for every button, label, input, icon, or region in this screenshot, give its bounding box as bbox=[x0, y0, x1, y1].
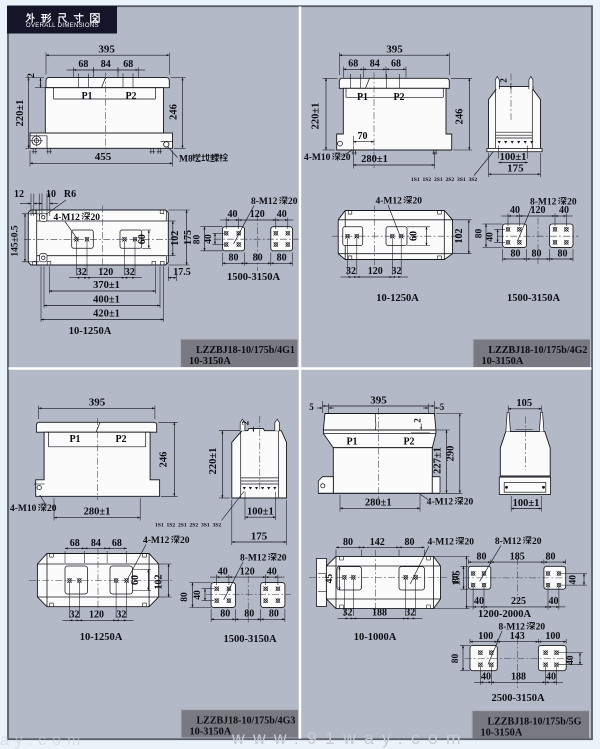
svg-text:40: 40 bbox=[510, 205, 520, 216]
svg-text:20: 20 bbox=[341, 153, 351, 163]
svg-text:80: 80 bbox=[477, 551, 487, 562]
svg-text:1500-3150A: 1500-3150A bbox=[223, 634, 276, 645]
svg-text:www.91way.com: www.91way.com bbox=[231, 728, 469, 748]
svg-text:80: 80 bbox=[511, 248, 521, 259]
svg-text:120: 120 bbox=[368, 266, 383, 277]
svg-text:P2: P2 bbox=[403, 437, 414, 448]
svg-text:10: 10 bbox=[46, 189, 56, 200]
svg-text:12: 12 bbox=[14, 189, 24, 200]
svg-text:32: 32 bbox=[77, 267, 87, 278]
svg-text:8-M12: 8-M12 bbox=[240, 554, 267, 564]
svg-text:175: 175 bbox=[507, 163, 524, 175]
svg-text:185: 185 bbox=[510, 551, 525, 562]
svg-text:40: 40 bbox=[566, 655, 576, 665]
svg-text:P1: P1 bbox=[357, 92, 368, 103]
svg-text:4-M12: 4-M12 bbox=[143, 536, 170, 546]
svg-text:8-M12: 8-M12 bbox=[495, 537, 522, 547]
svg-text:100±1: 100±1 bbox=[500, 152, 527, 163]
svg-text:120: 120 bbox=[98, 267, 113, 278]
svg-text:80: 80 bbox=[405, 537, 415, 548]
svg-text:2: 2 bbox=[499, 78, 509, 83]
svg-text:455: 455 bbox=[95, 151, 112, 163]
svg-text:4-M12: 4-M12 bbox=[54, 213, 81, 223]
svg-text:100: 100 bbox=[478, 631, 493, 642]
svg-text:32: 32 bbox=[392, 266, 402, 277]
svg-text:105: 105 bbox=[516, 398, 532, 409]
svg-text:60: 60 bbox=[130, 575, 141, 585]
svg-text:80: 80 bbox=[269, 609, 279, 620]
svg-text:102: 102 bbox=[170, 231, 181, 246]
svg-text:1S1 1S2 2S1 2S2 3S1 3S2: 1S1 1S2 2S1 2S2 3S1 3S2 bbox=[411, 177, 477, 183]
svg-text:1200-2000A: 1200-2000A bbox=[478, 609, 531, 620]
svg-text:5: 5 bbox=[440, 402, 445, 412]
svg-text:80: 80 bbox=[343, 537, 353, 548]
svg-text:32: 32 bbox=[116, 610, 126, 621]
svg-text:LZZBJ18-10/175b/4G3: LZZBJ18-10/175b/4G3 bbox=[197, 715, 296, 726]
svg-text:84: 84 bbox=[91, 538, 101, 549]
svg-text:40: 40 bbox=[204, 234, 214, 244]
svg-text:4-M10: 4-M10 bbox=[304, 153, 331, 163]
svg-text:10-1000A: 10-1000A bbox=[354, 632, 397, 643]
svg-text:145±0.5: 145±0.5 bbox=[11, 225, 21, 257]
svg-text:8-M12: 8-M12 bbox=[530, 198, 557, 208]
svg-text:370±1: 370±1 bbox=[93, 280, 120, 291]
svg-text:32: 32 bbox=[346, 266, 356, 277]
svg-text:10-1250A: 10-1250A bbox=[69, 326, 112, 337]
svg-text:280±1: 280±1 bbox=[361, 154, 388, 165]
svg-text:70: 70 bbox=[358, 131, 368, 142]
svg-text:4-M10: 4-M10 bbox=[10, 504, 37, 514]
svg-text:1500-3150A: 1500-3150A bbox=[227, 272, 280, 283]
svg-text:225: 225 bbox=[511, 596, 526, 607]
svg-text:20: 20 bbox=[465, 537, 475, 547]
svg-text:OVERALL DIMENSIONS: OVERALL DIMENSIONS bbox=[26, 23, 99, 29]
svg-text:2: 2 bbox=[27, 73, 37, 78]
svg-text:60: 60 bbox=[137, 234, 148, 244]
svg-text:80: 80 bbox=[558, 248, 568, 259]
svg-text:2: 2 bbox=[412, 418, 422, 423]
svg-text:80: 80 bbox=[253, 253, 263, 264]
svg-text:100: 100 bbox=[545, 631, 560, 642]
svg-text:188: 188 bbox=[372, 608, 387, 619]
svg-text:20: 20 bbox=[536, 623, 546, 633]
svg-text:395: 395 bbox=[386, 44, 403, 56]
svg-text:40: 40 bbox=[568, 575, 578, 585]
svg-text:2500-3150A: 2500-3150A bbox=[491, 693, 544, 704]
svg-text:40: 40 bbox=[267, 566, 277, 577]
svg-text:2: 2 bbox=[240, 420, 250, 425]
svg-text:80: 80 bbox=[180, 592, 190, 602]
svg-text:102: 102 bbox=[454, 229, 465, 244]
svg-text:10-3150A: 10-3150A bbox=[190, 727, 232, 738]
svg-text:220±1: 220±1 bbox=[15, 100, 26, 127]
svg-text:10-3150A: 10-3150A bbox=[481, 728, 523, 739]
svg-text:20: 20 bbox=[464, 498, 474, 508]
svg-text:80: 80 bbox=[193, 235, 203, 245]
svg-text:120: 120 bbox=[89, 610, 104, 621]
svg-text:4-M12: 4-M12 bbox=[427, 498, 454, 508]
svg-text:40: 40 bbox=[481, 672, 491, 683]
svg-text:68: 68 bbox=[78, 59, 88, 70]
svg-text:P2: P2 bbox=[115, 434, 126, 445]
svg-text:100±1: 100±1 bbox=[247, 507, 274, 518]
svg-text:20: 20 bbox=[91, 213, 101, 223]
svg-text:80: 80 bbox=[244, 609, 254, 620]
svg-text:60: 60 bbox=[409, 231, 420, 241]
svg-text:80: 80 bbox=[277, 253, 287, 264]
svg-text:80: 80 bbox=[229, 253, 239, 264]
svg-text:246: 246 bbox=[454, 109, 465, 125]
svg-text:120: 120 bbox=[240, 566, 255, 577]
svg-text:100±1: 100±1 bbox=[513, 498, 540, 509]
svg-text:P2: P2 bbox=[125, 91, 136, 102]
svg-text:5: 5 bbox=[309, 402, 314, 412]
svg-text:84: 84 bbox=[101, 59, 111, 70]
svg-text:20: 20 bbox=[532, 537, 542, 547]
svg-text:R6: R6 bbox=[64, 189, 76, 200]
svg-text:32: 32 bbox=[343, 608, 353, 619]
svg-text:280±1: 280±1 bbox=[84, 507, 111, 518]
svg-text:20: 20 bbox=[288, 197, 298, 207]
svg-text:68: 68 bbox=[391, 58, 401, 69]
svg-text:10-3150A: 10-3150A bbox=[189, 356, 231, 367]
svg-text:20: 20 bbox=[567, 198, 577, 208]
svg-text:40: 40 bbox=[485, 232, 495, 242]
svg-text:4-M12: 4-M12 bbox=[428, 537, 455, 547]
svg-text:80: 80 bbox=[546, 551, 556, 562]
svg-text:P1: P1 bbox=[69, 434, 80, 445]
svg-text:395: 395 bbox=[89, 397, 106, 409]
svg-text:246: 246 bbox=[169, 104, 180, 120]
svg-text:8-M12: 8-M12 bbox=[251, 197, 278, 207]
svg-text:32: 32 bbox=[125, 267, 135, 278]
svg-text:290: 290 bbox=[445, 446, 456, 462]
svg-text:220±1: 220±1 bbox=[208, 448, 219, 475]
svg-text:80: 80 bbox=[451, 573, 461, 583]
svg-text:220±1: 220±1 bbox=[311, 103, 322, 130]
svg-text:80: 80 bbox=[474, 229, 484, 239]
svg-text:P1: P1 bbox=[81, 91, 92, 102]
svg-text:142: 142 bbox=[370, 537, 385, 548]
svg-text:280±1: 280±1 bbox=[365, 498, 392, 509]
svg-text:LZZBJ18-10/175b/4G2: LZZBJ18-10/175b/4G2 bbox=[489, 345, 588, 356]
svg-text:68: 68 bbox=[123, 59, 133, 70]
svg-text:40: 40 bbox=[549, 596, 559, 607]
svg-text:68: 68 bbox=[348, 58, 358, 69]
svg-text:40: 40 bbox=[546, 672, 556, 683]
svg-text:395: 395 bbox=[98, 44, 115, 56]
svg-text:1500-3150A: 1500-3150A bbox=[507, 293, 560, 304]
svg-text:ay.com: ay.com bbox=[0, 732, 86, 749]
svg-text:80: 80 bbox=[220, 609, 230, 620]
svg-text:20: 20 bbox=[47, 504, 57, 514]
svg-text:400±1: 400±1 bbox=[93, 295, 120, 306]
svg-text:420±1: 420±1 bbox=[93, 309, 120, 320]
svg-text:10-1250A: 10-1250A bbox=[80, 632, 123, 643]
svg-text:40: 40 bbox=[474, 596, 484, 607]
svg-text:40: 40 bbox=[228, 209, 238, 220]
svg-text:68: 68 bbox=[70, 538, 80, 549]
svg-text:84: 84 bbox=[370, 58, 380, 69]
svg-text:188: 188 bbox=[511, 672, 526, 683]
svg-text:40: 40 bbox=[218, 566, 228, 577]
svg-text:68: 68 bbox=[112, 538, 122, 549]
svg-text:20: 20 bbox=[277, 554, 287, 564]
svg-text:45: 45 bbox=[325, 574, 335, 584]
svg-text:LZZBJ18-10/175b/4G1: LZZBJ18-10/175b/4G1 bbox=[196, 345, 295, 356]
svg-text:M8: M8 bbox=[179, 155, 193, 165]
svg-text:395: 395 bbox=[370, 394, 387, 406]
svg-text:20: 20 bbox=[413, 197, 423, 207]
svg-text:10-1250A: 10-1250A bbox=[376, 293, 419, 304]
svg-text:32: 32 bbox=[405, 608, 415, 619]
svg-text:8-M12: 8-M12 bbox=[499, 623, 526, 633]
svg-text:P1: P1 bbox=[346, 437, 357, 448]
svg-text:P2: P2 bbox=[393, 92, 404, 103]
svg-text:227±1: 227±1 bbox=[433, 447, 444, 474]
svg-text:20: 20 bbox=[180, 536, 190, 546]
svg-text:102: 102 bbox=[154, 575, 165, 590]
svg-text:80: 80 bbox=[451, 654, 461, 664]
svg-text:40: 40 bbox=[193, 590, 203, 600]
svg-text:10-3150A: 10-3150A bbox=[482, 356, 524, 367]
svg-text:120: 120 bbox=[250, 209, 265, 220]
svg-text:80: 80 bbox=[532, 248, 542, 259]
svg-text:1S1 1S2 2S1 2S2 3S1 3S2: 1S1 1S2 2S1 2S2 3S1 3S2 bbox=[155, 523, 221, 529]
svg-text:4-M12: 4-M12 bbox=[376, 197, 403, 207]
svg-text:17.5: 17.5 bbox=[173, 267, 191, 278]
svg-text:LZZBJ18-10/175b/5G: LZZBJ18-10/175b/5G bbox=[488, 716, 582, 727]
svg-text:175: 175 bbox=[251, 530, 268, 542]
svg-text:40: 40 bbox=[277, 209, 287, 220]
svg-text:32: 32 bbox=[70, 610, 80, 621]
svg-text:143: 143 bbox=[510, 631, 525, 642]
svg-text:246: 246 bbox=[158, 452, 169, 468]
